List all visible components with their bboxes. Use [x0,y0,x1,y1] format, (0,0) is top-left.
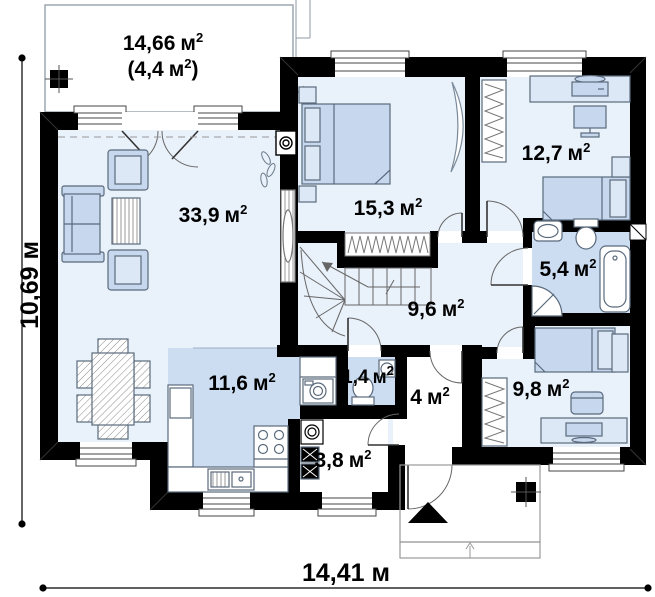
front-door-arc [408,465,452,509]
desk [530,76,630,103]
wardrobe [482,378,507,446]
laptop [566,423,602,436]
window-living-right [194,106,242,130]
window-bedroom2 [503,51,586,77]
bathroom-sink [534,221,562,241]
living-room-label: 33,9м2 [179,202,248,227]
desk-chair [571,392,603,414]
window-bedroom3 [549,447,624,471]
bedroom3-label: 9,8м2 [513,376,570,401]
entrance-marker [408,502,448,523]
window-dining [76,442,136,466]
width-dimension-label: 14,41м [302,559,390,587]
chimney-cabinet [281,190,295,282]
single-bed [535,328,615,372]
desk [541,418,627,443]
wardrobe [482,80,506,162]
wc-label: 1,4м2 [342,363,394,388]
bathroom-label: 5,4м2 [540,256,597,281]
window-boiler [318,492,376,516]
washing-machine [300,377,336,403]
bedroom1-label: 15,3м2 [354,195,423,220]
fireplace [276,131,296,155]
bedside-shelf [612,157,630,177]
armchair [108,250,148,290]
terrace [45,0,310,112]
bedroom2-label: 12,7м2 [522,140,591,165]
sofa [62,186,104,262]
porch-column [511,477,541,507]
porch [400,465,541,558]
height-dimension-label: 10,69м [16,241,44,329]
floor-plan: 14,66м2 (4,4м2) 33,9м2 15,3м2 12,7м2 5,4… [0,0,655,597]
kitchen-sink [208,469,254,490]
boiler-label: 3,8м2 [315,447,372,472]
window-bedroom1 [331,51,409,77]
kitchen-label: 11,6м2 [208,370,276,395]
bedside-table [612,334,628,372]
single-bed [543,177,630,220]
window-kitchen [199,492,254,516]
armchair [108,150,148,190]
vent-window-bathroom [630,224,646,240]
toilet [574,219,598,249]
hall-label: 9,6м2 [408,296,465,321]
terrace-label: 14,66м2 [123,30,203,55]
coffee-table [112,198,140,244]
boiler-unit [301,420,323,444]
bathtub [600,246,630,312]
floor-plan-drawing: 14,66м2 (4,4м2) 33,9м2 15,3м2 12,7м2 5,4… [0,0,655,597]
window-living-left [74,106,126,130]
